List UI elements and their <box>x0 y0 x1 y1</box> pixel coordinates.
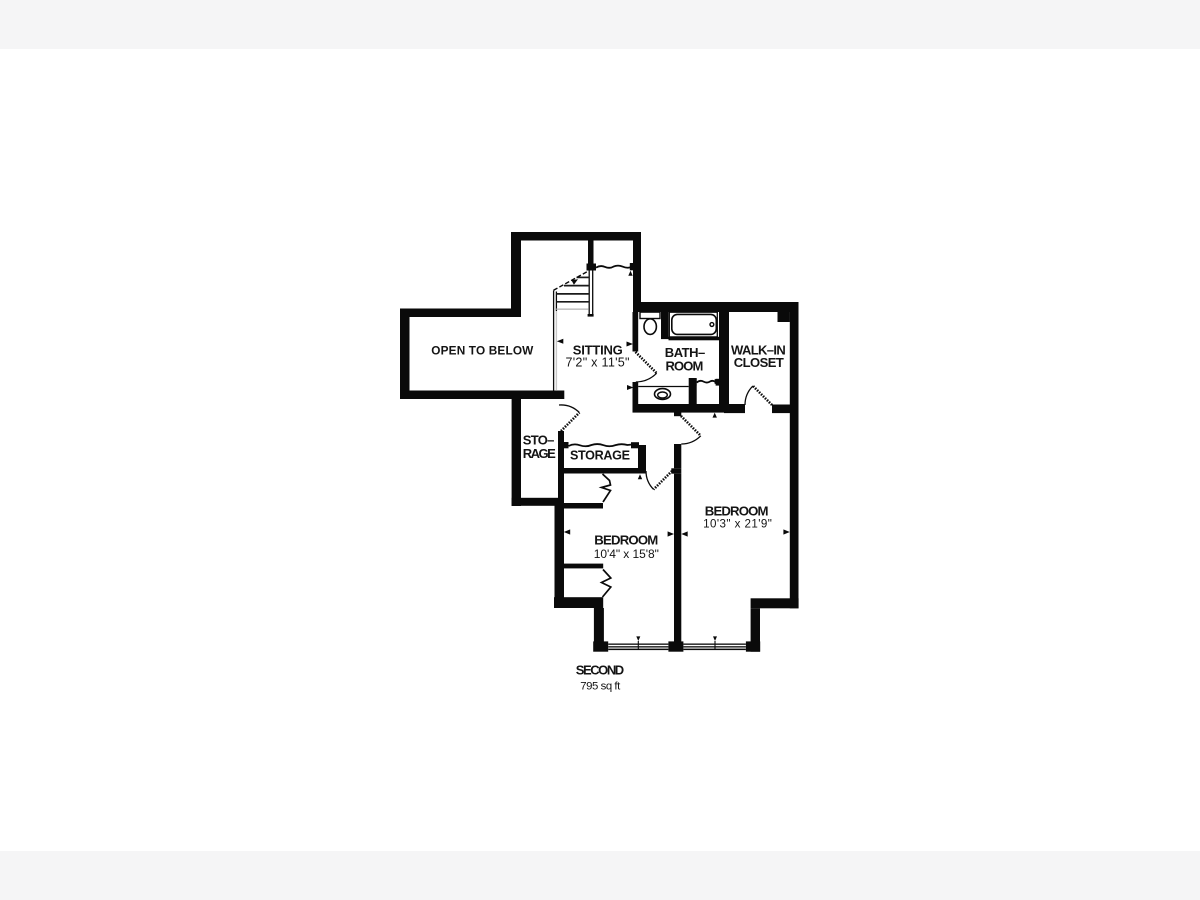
svg-text:SECOND: SECOND <box>576 663 625 678</box>
svg-text:CLOSET: CLOSET <box>734 355 784 370</box>
svg-text:10'3" x 21'9": 10'3" x 21'9" <box>703 518 772 531</box>
svg-text:BEDROOM: BEDROOM <box>594 533 658 548</box>
svg-text:BEDROOM: BEDROOM <box>705 504 769 519</box>
svg-text:STORAGE: STORAGE <box>570 448 630 462</box>
svg-text:RAGE: RAGE <box>523 446 556 461</box>
svg-text:OPEN TO BELOW: OPEN TO BELOW <box>431 343 534 357</box>
svg-text:10'4" x 15'8": 10'4" x 15'8" <box>594 547 659 561</box>
svg-text:7'2" x 11'5": 7'2" x 11'5" <box>566 356 630 370</box>
svg-text:795 sq ft: 795 sq ft <box>580 680 621 692</box>
svg-text:ROOM: ROOM <box>666 358 704 373</box>
